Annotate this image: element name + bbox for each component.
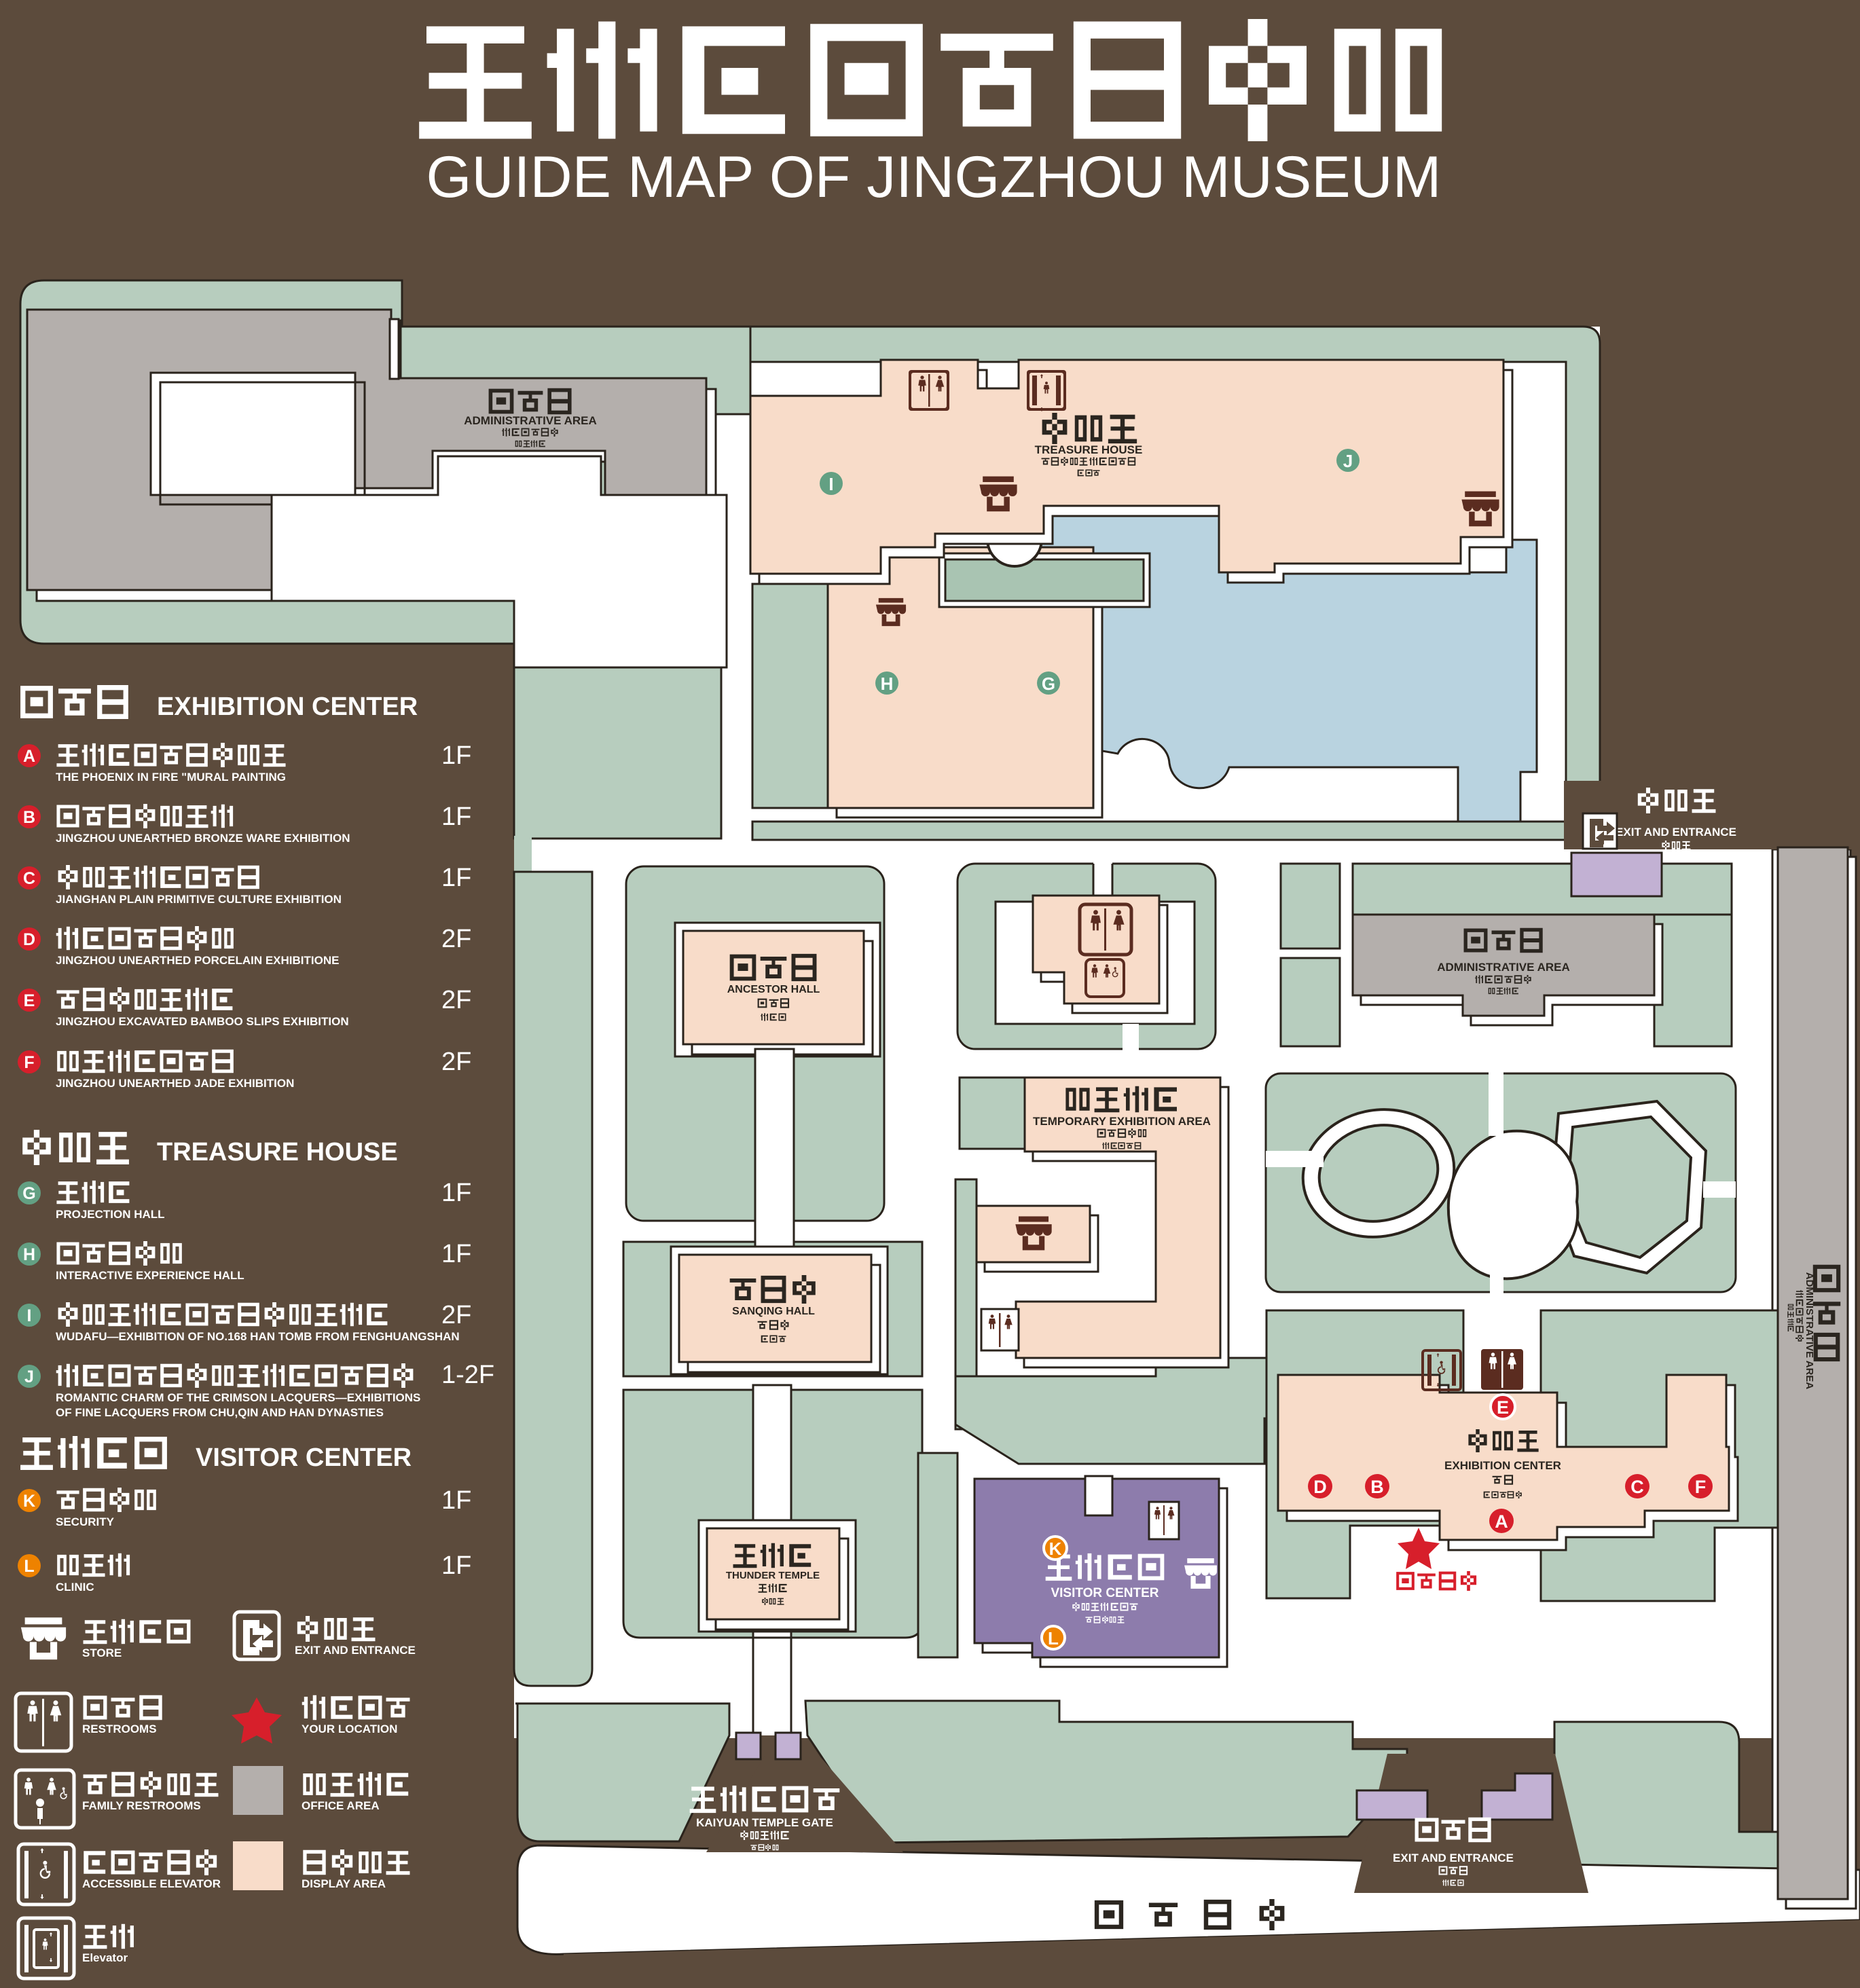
- svg-text:Elevator: Elevator: [82, 1951, 128, 1964]
- svg-text:ADMINISTRATIVE AREA: ADMINISTRATIVE AREA: [464, 414, 597, 427]
- svg-text:YOUR LOCATION: YOUR LOCATION: [302, 1723, 397, 1735]
- svg-text:ADMINISTRATIVE AREA: ADMINISTRATIVE AREA: [1804, 1272, 1815, 1390]
- svg-text:D: D: [23, 930, 35, 949]
- svg-text:ROMANTIC CHARM OF THE CRIMSON: ROMANTIC CHARM OF THE CRIMSON LACQUERS—E…: [56, 1391, 420, 1404]
- svg-text:CLINIC: CLINIC: [56, 1581, 94, 1594]
- svg-text:2F: 2F: [441, 986, 471, 1014]
- svg-text:E: E: [24, 991, 35, 1010]
- svg-text:WUDAFU—EXHIBITION OF NO.168 HA: WUDAFU—EXHIBITION OF NO.168 HAN TOMB FRO…: [56, 1330, 460, 1343]
- svg-text:EXHIBITION CENTER: EXHIBITION CENTER: [1444, 1459, 1561, 1472]
- svg-text:1F: 1F: [441, 1551, 471, 1580]
- svg-text:K: K: [23, 1492, 35, 1511]
- svg-text:INTERACTIVE EXPERIENCE HALL: INTERACTIVE EXPERIENCE HALL: [56, 1269, 244, 1282]
- svg-text:L: L: [24, 1557, 34, 1576]
- svg-text:THUNDER TEMPLE: THUNDER TEMPLE: [726, 1570, 820, 1581]
- svg-text:J: J: [24, 1367, 34, 1386]
- svg-text:C: C: [1630, 1477, 1644, 1497]
- svg-text:J: J: [1343, 451, 1353, 471]
- svg-text:G: G: [22, 1184, 35, 1203]
- svg-text:EXIT AND ENTRANCE: EXIT AND ENTRANCE: [1393, 1852, 1514, 1864]
- svg-text:JINGZHOU UNEARTHED BRONZE WARE: JINGZHOU UNEARTHED BRONZE WARE EXHIBITIO…: [56, 832, 350, 845]
- svg-text:OF FINE LACQUERS FROM CHU,QIN: OF FINE LACQUERS FROM CHU,QIN AND HAN DY…: [56, 1406, 384, 1419]
- svg-text:VISITOR CENTER: VISITOR CENTER: [1051, 1586, 1159, 1600]
- svg-text:JIANGHAN PLAIN PRIMITIVE CULTU: JIANGHAN PLAIN PRIMITIVE CULTURE EXHIBIT…: [56, 893, 342, 906]
- svg-text:JINGZHOU UNEARTHED JADE EXHIBI: JINGZHOU UNEARTHED JADE EXHIBITION: [56, 1077, 294, 1090]
- svg-text:EXIT AND ENTRANCE: EXIT AND ENTRANCE: [1616, 826, 1736, 839]
- svg-text:1F: 1F: [441, 1486, 471, 1515]
- svg-text:G: G: [1042, 674, 1055, 694]
- svg-text:FAMILY RESTROOMS: FAMILY RESTROOMS: [82, 1799, 201, 1812]
- svg-text:A: A: [23, 747, 35, 766]
- svg-text:A: A: [1495, 1511, 1508, 1532]
- svg-text:ACCESSIBLE ELEVATOR: ACCESSIBLE ELEVATOR: [82, 1877, 221, 1890]
- svg-text:E: E: [1497, 1397, 1509, 1418]
- svg-text:2F: 2F: [441, 1048, 471, 1076]
- svg-text:EXHIBITION CENTER: EXHIBITION CENTER: [157, 693, 418, 721]
- svg-text:JINGZHOU EXCAVATED BAMBOO SLIP: JINGZHOU EXCAVATED BAMBOO SLIPS EXHIBITI…: [56, 1015, 349, 1028]
- svg-text:TREASURE HOUSE: TREASURE HOUSE: [157, 1138, 398, 1166]
- svg-text:1F: 1F: [441, 1240, 471, 1268]
- svg-text:D: D: [1313, 1477, 1327, 1497]
- svg-text:1F: 1F: [441, 803, 471, 831]
- svg-text:ANCESTOR HALL: ANCESTOR HALL: [727, 984, 820, 995]
- svg-text:F: F: [1695, 1477, 1707, 1497]
- svg-text:OFFICE AREA: OFFICE AREA: [302, 1799, 380, 1812]
- svg-text:ADMINISTRATIVE AREA: ADMINISTRATIVE AREA: [1437, 961, 1570, 974]
- svg-text:L: L: [1048, 1628, 1059, 1649]
- svg-text:1F: 1F: [441, 864, 471, 892]
- svg-text:2F: 2F: [441, 925, 471, 953]
- svg-text:DISPLAY AREA: DISPLAY AREA: [302, 1877, 386, 1890]
- svg-text:TEMPORARY EXHIBITION AREA: TEMPORARY EXHIBITION AREA: [1033, 1115, 1211, 1128]
- svg-text:PROJECTION HALL: PROJECTION HALL: [56, 1208, 165, 1221]
- svg-text:1-2F: 1-2F: [441, 1361, 494, 1389]
- svg-text:1F: 1F: [441, 741, 471, 770]
- svg-text:B: B: [23, 808, 35, 827]
- svg-text:I: I: [27, 1306, 32, 1325]
- svg-text:B: B: [1370, 1477, 1384, 1497]
- svg-text:TREASURE HOUSE: TREASURE HOUSE: [1035, 443, 1143, 456]
- svg-text:2F: 2F: [441, 1301, 471, 1329]
- svg-text:JINGZHOU UNEARTHED PORCELAIN E: JINGZHOU UNEARTHED PORCELAIN EXHIBITIONE: [56, 954, 339, 967]
- svg-text:THE PHOENIX IN FIRE "MURAL PAI: THE PHOENIX IN FIRE "MURAL PAINTING: [56, 771, 286, 784]
- svg-text:H: H: [23, 1245, 35, 1264]
- svg-text:KAIYUAN TEMPLE GATE: KAIYUAN TEMPLE GATE: [696, 1816, 833, 1829]
- svg-text:VISITOR CENTER: VISITOR CENTER: [196, 1443, 412, 1472]
- svg-text:SECURITY: SECURITY: [56, 1515, 115, 1528]
- svg-text:STORE: STORE: [82, 1646, 122, 1659]
- svg-text:RESTROOMS: RESTROOMS: [82, 1723, 157, 1735]
- svg-text:H: H: [881, 674, 894, 694]
- svg-text:K: K: [1049, 1539, 1062, 1559]
- svg-text:F: F: [24, 1053, 34, 1072]
- svg-text:C: C: [23, 869, 35, 888]
- svg-text:GUIDE MAP OF JINGZHOU MUSEUM: GUIDE MAP OF JINGZHOU MUSEUM: [426, 145, 1442, 210]
- svg-text:I: I: [828, 474, 833, 494]
- svg-text:SANQING HALL: SANQING HALL: [732, 1306, 815, 1317]
- svg-text:EXIT AND ENTRANCE: EXIT AND ENTRANCE: [295, 1644, 416, 1657]
- svg-text:1F: 1F: [441, 1179, 471, 1207]
